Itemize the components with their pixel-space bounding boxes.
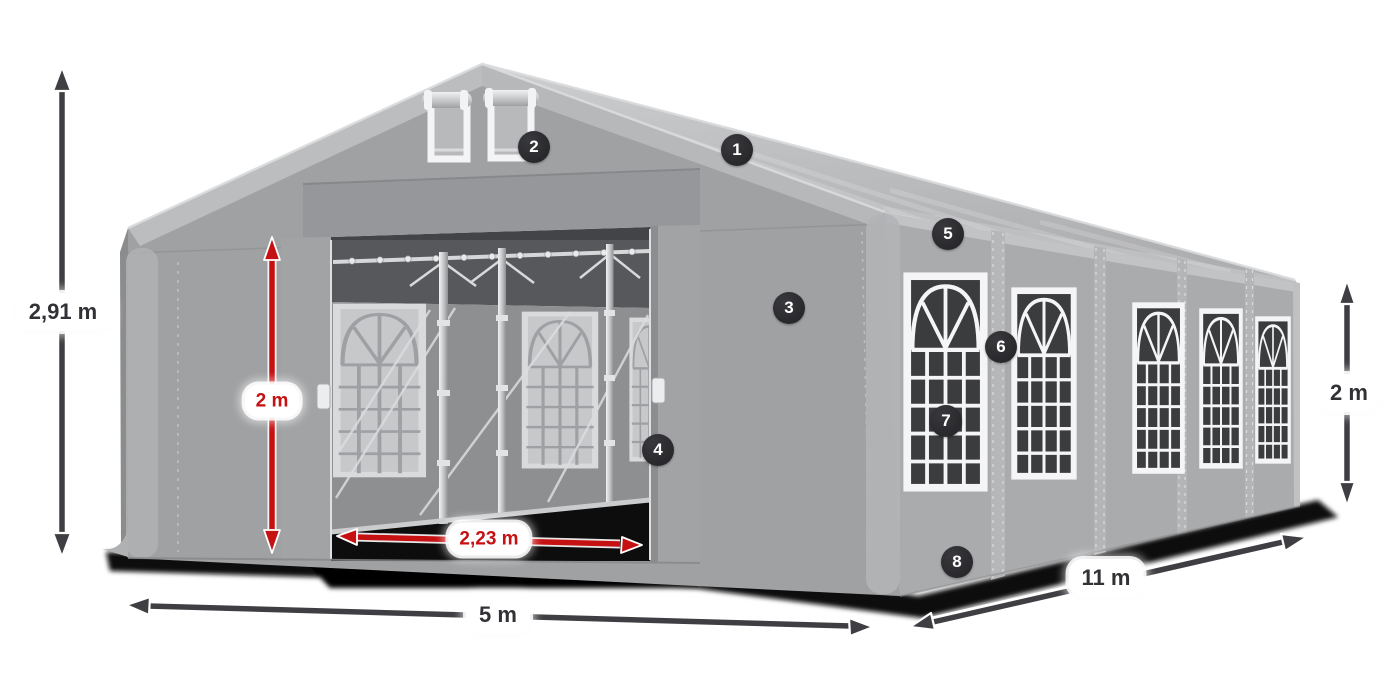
side-window-5 (1257, 319, 1289, 461)
tent-interior (331, 227, 667, 562)
interior-window-2 (525, 314, 595, 466)
callout-badge-8: 8 (941, 546, 973, 578)
door-latch-left (317, 384, 330, 409)
side-wall-end-cap (1293, 282, 1300, 507)
side-window-4 (1201, 311, 1241, 466)
gable-vent-left (422, 90, 472, 160)
callout-badge-3: 3 (773, 292, 805, 324)
dimension-label-entrance-width: 2,23 m (448, 523, 529, 556)
dimension-label-side-wall-height: 2 m (1317, 374, 1381, 412)
callout-badge-5: 5 (932, 218, 964, 250)
side-window-2 (1014, 291, 1073, 477)
tent-illustration (0, 0, 1400, 700)
front-left-corner-pole (126, 248, 158, 558)
dimension-label-entrance-height: 2 m (245, 385, 300, 418)
dimension-label-total-height: 2,91 m (16, 293, 111, 331)
tent-dimension-diagram: 2,91 m 2 m 2,23 m 5 m 11 m 2 m 1 2 3 4 5… (0, 0, 1400, 700)
side-window-1 (907, 276, 984, 488)
dimension-label-front-width: 5 m (466, 596, 530, 634)
dimension-label-side-length: 11 m (1069, 559, 1144, 597)
callout-badge-4: 4 (642, 434, 674, 466)
callout-badge-7: 7 (930, 405, 962, 437)
callout-badge-2: 2 (518, 131, 550, 163)
side-window-3 (1135, 305, 1183, 471)
door-latch-right (652, 378, 665, 403)
callout-badge-1: 1 (721, 134, 753, 166)
callout-badge-6: 6 (985, 331, 1017, 363)
front-right-corner-pole (866, 214, 900, 594)
